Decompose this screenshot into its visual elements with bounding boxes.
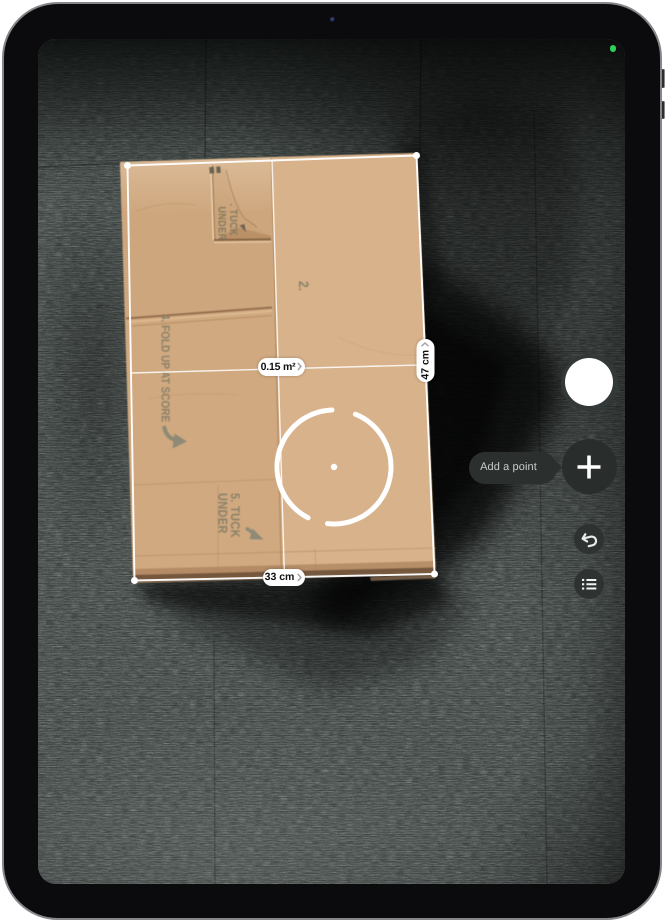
svg-text:2.: 2. xyxy=(296,281,312,291)
svg-text:4. FOLD UP AT SCORE: 4. FOLD UP AT SCORE xyxy=(158,314,171,422)
svg-text:5. TUCK: 5. TUCK xyxy=(228,493,242,538)
svg-text:UNDER: UNDER xyxy=(215,493,229,534)
svg-text:. TUCK: . TUCK xyxy=(228,204,240,236)
svg-text:UNDER: UNDER xyxy=(216,207,228,241)
